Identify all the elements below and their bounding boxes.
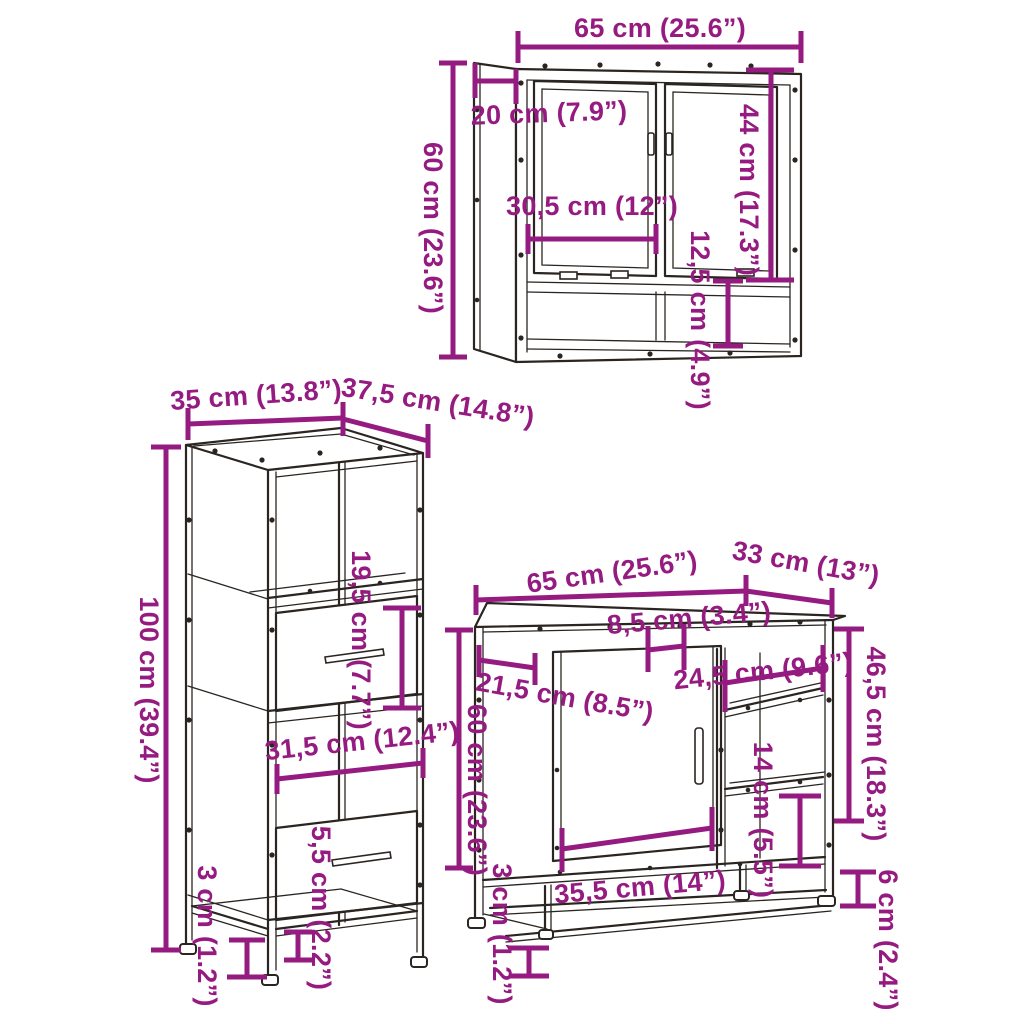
sink-foot xyxy=(539,930,553,939)
dim-mirror-height: 60 cm (23.6”) xyxy=(418,142,448,314)
dim-sink-shelf-gap: 14 cm (5.5”) xyxy=(748,742,778,899)
mirror-right-door-handle xyxy=(666,133,672,155)
tall-foot xyxy=(411,957,427,967)
dim-mirror-depth: 20 cm (7.9”) xyxy=(470,95,628,130)
sink-foot xyxy=(818,896,835,906)
sink-cabinet-drawing: 65 cm (25.6”) 33 cm (13”) 60 cm (23.6”) … xyxy=(445,535,903,1010)
sink-door-handle xyxy=(695,728,703,784)
mirror-left-door-handle xyxy=(648,133,654,155)
dim-tall-leg-height: 3 cm (1.2”) xyxy=(192,865,222,1006)
dim-tall-width: 35 cm (13.8”) xyxy=(169,374,343,416)
dim-mirror-shelf-height: 12,5 cm (4.9”) xyxy=(685,230,715,410)
dim-mirror-door-width: 30,5 cm (12”) xyxy=(506,191,678,221)
dim-tall-drawer-height: 19,5 cm (7.7”) xyxy=(346,550,376,730)
dim-mirror-width: 65 cm (25.6”) xyxy=(574,13,746,43)
dim-sink-top-gap: 8,5 cm (3.4”) xyxy=(606,596,772,640)
dim-sink-height: 60 cm (23.6”) xyxy=(462,704,492,876)
dim-sink-door-width: 35,5 cm (14”) xyxy=(553,865,727,910)
mirror-cabinet-drawing: 65 cm (25.6”) 20 cm (7.9”) 60 cm (23.6”)… xyxy=(418,13,801,410)
dim-sink-depth: 33 cm (13”) xyxy=(730,535,882,590)
dim-tall-depth: 37,5 cm (14.8”) xyxy=(339,372,536,432)
dim-sink-open-side-height: 46,5 cm (18.3”) xyxy=(861,646,891,841)
dim-sink-width: 65 cm (25.6”) xyxy=(525,545,700,599)
furniture-dimension-drawing: 65 cm (25.6”) 20 cm (7.9”) 60 cm (23.6”)… xyxy=(0,0,1024,1024)
sink-foot xyxy=(468,918,485,928)
dim-tall-plinth-height: 5,5 cm (2.2”) xyxy=(306,826,336,990)
dim-mirror-door-height: 44 cm (17.3”) xyxy=(734,104,764,276)
dim-sink-leg-height: 3 cm (1.2”) xyxy=(487,863,517,1004)
dim-tall-height: 100 cm (39.4”) xyxy=(134,596,164,783)
dimension-diagram: 65 cm (25.6”) 20 cm (7.9”) 60 cm (23.6”)… xyxy=(0,0,1024,1024)
dim-sink-bottom-gap: 6 cm (2.4”) xyxy=(873,869,903,1010)
sink-foot xyxy=(734,891,749,900)
tall-drawer-2 xyxy=(276,811,417,920)
